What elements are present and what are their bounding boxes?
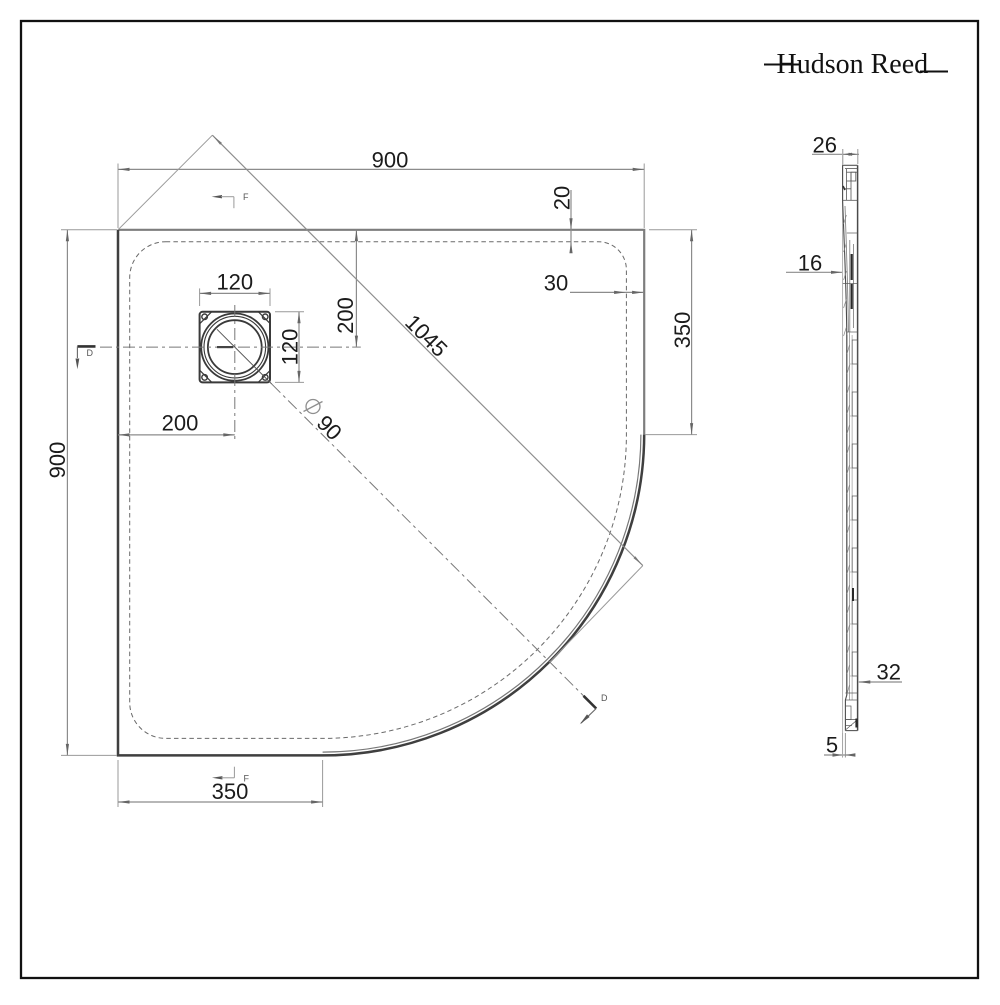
svg-text:16: 16 [798,251,822,276]
svg-text:5: 5 [826,733,838,758]
svg-text:350: 350 [212,779,249,804]
svg-text:900: 900 [372,147,409,172]
svg-text:120: 120 [216,270,253,295]
svg-text:D: D [601,693,608,703]
svg-text:120: 120 [278,329,303,366]
svg-text:20: 20 [550,186,575,210]
svg-text:30: 30 [544,271,568,296]
svg-text:200: 200 [162,411,199,436]
svg-text:26: 26 [812,133,836,158]
svg-text:D: D [87,348,94,358]
svg-text:32: 32 [876,660,900,685]
svg-text:F: F [243,192,249,202]
svg-text:200: 200 [333,297,358,334]
svg-text:350: 350 [670,312,695,349]
svg-text:900: 900 [45,442,70,479]
